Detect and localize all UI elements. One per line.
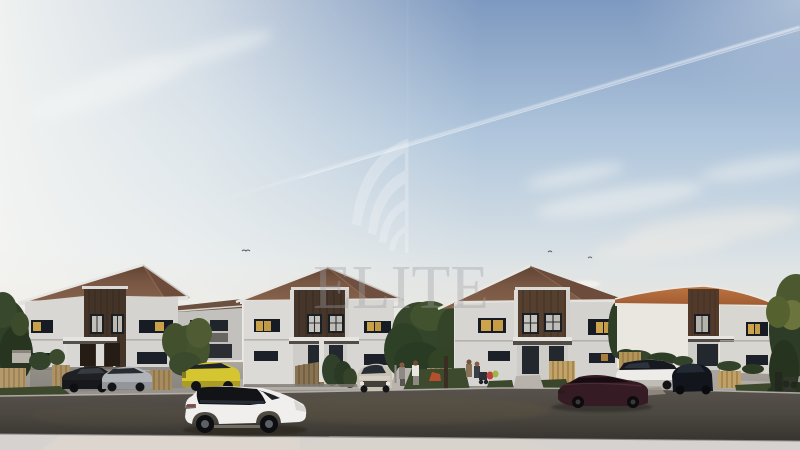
svg-text:ELITE: ELITE (313, 254, 489, 322)
